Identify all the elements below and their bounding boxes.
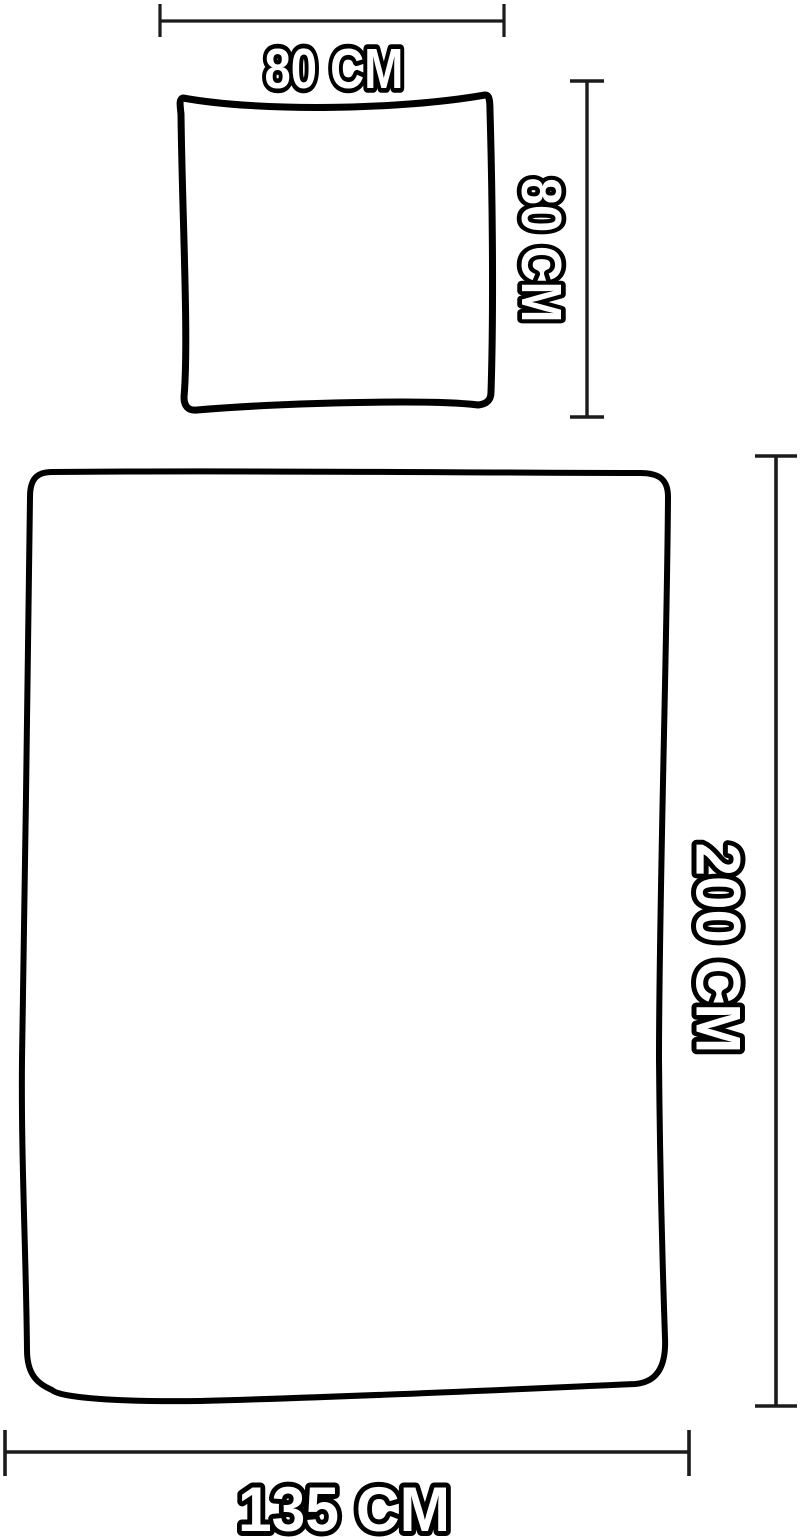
svg-text:135 CM: 135 CM — [238, 1475, 450, 1539]
svg-text:80 CM: 80 CM — [509, 178, 573, 323]
svg-text:80 CM: 80 CM — [265, 37, 404, 101]
svg-text:200 CM: 200 CM — [683, 843, 753, 1054]
